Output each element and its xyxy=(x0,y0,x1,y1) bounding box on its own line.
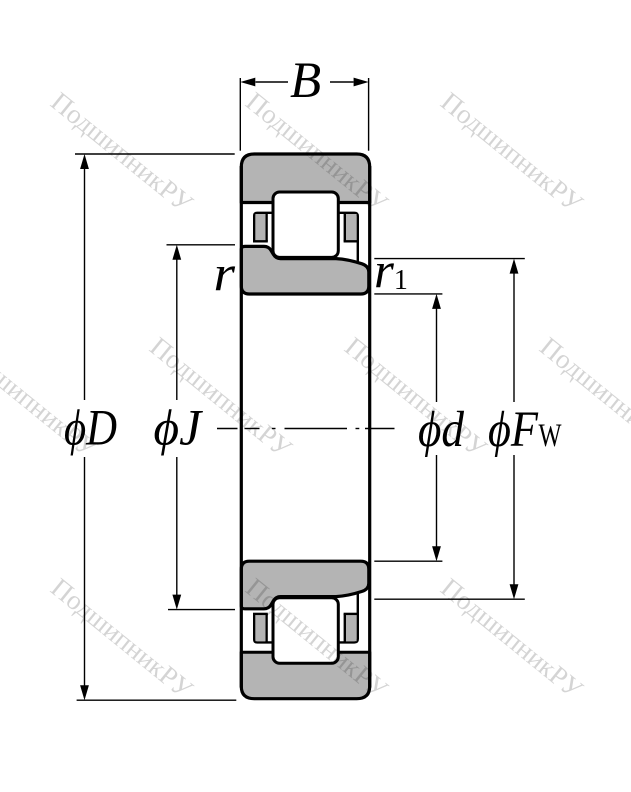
svg-text:W: W xyxy=(539,418,563,454)
svg-text:ϕJ: ϕJ xyxy=(154,401,204,457)
svg-text:ϕF: ϕF xyxy=(488,402,539,458)
svg-text:ПодшипникРУ: ПодшипникРУ xyxy=(435,86,589,219)
svg-text:ПодшипникРУ: ПодшипникРУ xyxy=(0,331,103,464)
svg-text:ПодшипникРУ: ПодшипникРУ xyxy=(45,86,199,219)
svg-text:r1: r1 xyxy=(374,244,408,300)
svg-text:ПодшипникРУ: ПодшипникРУ xyxy=(339,331,493,464)
svg-text:r: r xyxy=(214,247,236,303)
svg-text:B: B xyxy=(290,53,321,109)
svg-text:ПодшипникРУ: ПодшипникРУ xyxy=(45,572,199,705)
